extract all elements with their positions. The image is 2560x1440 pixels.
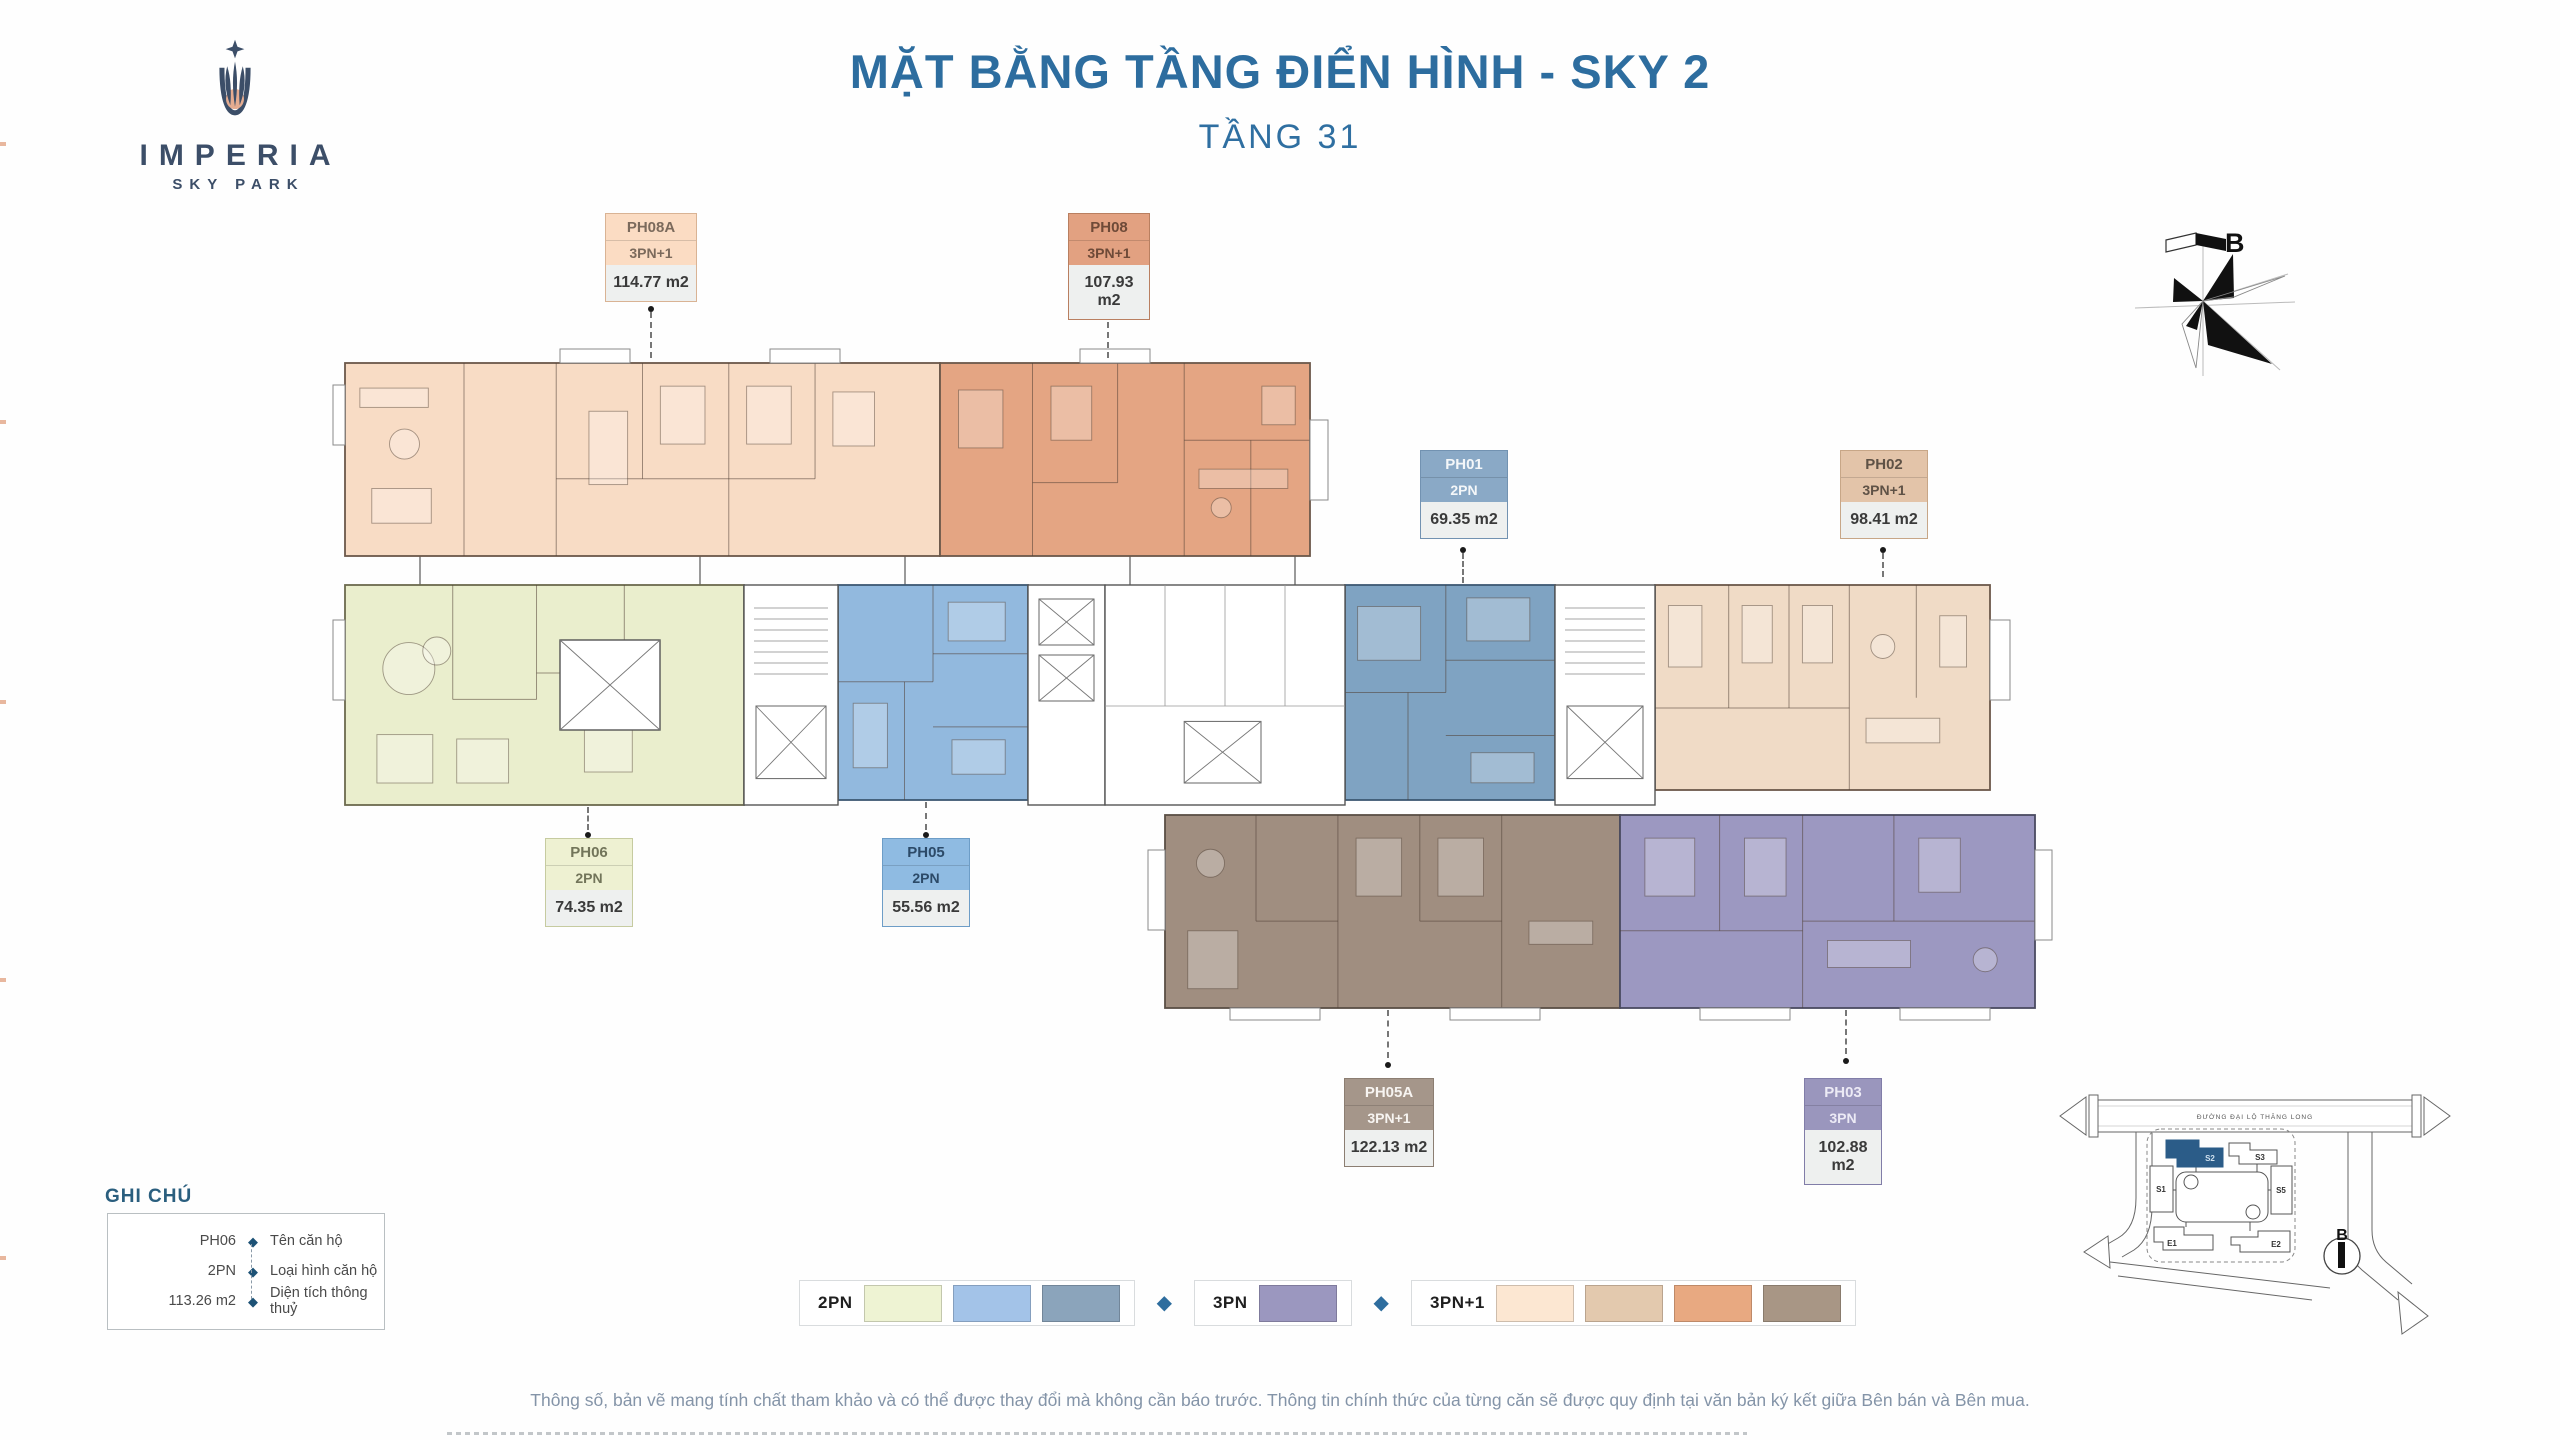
- furniture: [1199, 469, 1288, 488]
- diamond-separator-icon: ◆: [1157, 1293, 1172, 1313]
- plan-unit-PH08A: [345, 363, 940, 556]
- legend-key-title: GHI CHÚ: [105, 1186, 192, 1208]
- leader-dot-PH08A: [648, 306, 654, 312]
- diamond-bullet-icon: ◆: [236, 1235, 270, 1248]
- legend-key-desc: Loại hình căn hộ: [270, 1263, 384, 1279]
- plan-unit-PH05A: [1165, 815, 1620, 1008]
- type-legend-group-2PN: 2PN: [799, 1280, 1135, 1326]
- legend-key-sample: PH06: [108, 1233, 236, 1249]
- page-edge-mark: [0, 420, 6, 424]
- balcony: [1080, 349, 1150, 363]
- furniture: [1866, 718, 1940, 743]
- plan-unit-PH02: [1655, 585, 1990, 790]
- balcony: [1990, 620, 2010, 700]
- unit-type: 3PN: [1805, 1106, 1881, 1130]
- plan-unit-PH05: [838, 585, 1028, 800]
- sitemap-building-E2: [2231, 1231, 2290, 1252]
- balcony: [333, 385, 345, 445]
- unit-area: 102.88 m2: [1805, 1130, 1881, 1184]
- core-mep: [1105, 585, 1345, 805]
- leader-line-PH01: [1462, 553, 1464, 583]
- core-stair: [744, 585, 838, 805]
- unit-label-PH01: PH012PN69.35 m2: [1420, 450, 1508, 539]
- sitemap-building-label-S2: S2: [2205, 1154, 2215, 1163]
- page-edge-mark: [0, 1256, 6, 1260]
- legend-key-connector: [251, 1244, 252, 1299]
- furniture: [959, 390, 1003, 448]
- color-swatch: [1042, 1285, 1120, 1322]
- unit-label-PH02: PH023PN+198.41 m2: [1840, 450, 1928, 539]
- furniture: [1438, 838, 1484, 896]
- furniture: [1742, 606, 1772, 663]
- balcony: [1450, 1008, 1540, 1020]
- sitemap-building-label-S3: S3: [2255, 1153, 2265, 1162]
- floor-plan-page: IMPERIA SKY PARK MẶT BẰNG TẦNG ĐIỂN HÌNH…: [0, 0, 2560, 1440]
- furniture: [589, 411, 628, 484]
- unit-id: PH08A: [606, 214, 696, 241]
- core-stair: [1555, 585, 1655, 805]
- logo-tagline: SKY PARK: [95, 176, 375, 193]
- site-location-map: ĐƯỜNG ĐẠI LỘ THĂNG LONGS1S2S3S5E1E2B: [2055, 1080, 2485, 1370]
- type-legend: 2PN◆3PN◆3PN+1: [799, 1280, 1856, 1326]
- unit-type: 3PN+1: [1069, 241, 1149, 265]
- leader-dot-PH03: [1843, 1058, 1849, 1064]
- unit-area: 74.35 m2: [546, 890, 632, 926]
- unit-type: 3PN+1: [1841, 478, 1927, 502]
- color-swatch: [1259, 1285, 1337, 1322]
- plan-unit-PH08: [940, 363, 1310, 556]
- unit-type: 3PN+1: [1345, 1106, 1433, 1130]
- furniture: [1358, 607, 1421, 661]
- furniture: [1645, 838, 1695, 896]
- sitemap-road-label: ĐƯỜNG ĐẠI LỘ THĂNG LONG: [2197, 1112, 2313, 1121]
- diamond-bullet-icon: ◆: [236, 1265, 270, 1278]
- unit-label-PH03: PH033PN102.88 m2: [1804, 1078, 1882, 1185]
- type-legend-label: 3PN: [1213, 1293, 1248, 1313]
- page-title: MẶT BẰNG TẦNG ĐIỂN HÌNH - SKY 2: [0, 44, 2560, 99]
- balcony: [1900, 1008, 1990, 1020]
- disclaimer-text: Thông số, bản vẽ mang tính chất tham khả…: [0, 1390, 2560, 1411]
- unit-id: PH05A: [1345, 1079, 1433, 1106]
- road-arrow-icon: [2060, 1097, 2086, 1135]
- furniture: [390, 429, 420, 459]
- furniture: [948, 602, 1005, 641]
- type-legend-group-3PN: 3PN: [1194, 1280, 1352, 1326]
- furniture: [833, 392, 875, 446]
- color-swatch: [864, 1285, 942, 1322]
- plan-unit-PH06: [345, 585, 744, 805]
- furniture: [1197, 849, 1225, 877]
- bottom-dashed-strip: [447, 1432, 1747, 1435]
- leader-dot-PH01: [1460, 547, 1466, 553]
- furniture: [1529, 921, 1593, 944]
- furniture: [853, 703, 887, 768]
- furniture: [952, 740, 1005, 774]
- page-edge-mark: [0, 978, 6, 982]
- legend-key-row: 113.26 m2◆Diện tích thông thuỷ: [108, 1286, 384, 1316]
- unit-area: 98.41 m2: [1841, 502, 1927, 538]
- type-legend-group-3PNplus1: 3PN+1: [1411, 1280, 1856, 1326]
- legend-key-desc: Tên căn hộ: [270, 1233, 384, 1249]
- leader-line-PH05A: [1387, 1010, 1389, 1058]
- furniture: [457, 739, 509, 783]
- unit-type: 2PN: [1421, 478, 1507, 502]
- unit-type: 2PN: [883, 866, 969, 890]
- page-subtitle: TẦNG 31: [0, 118, 2560, 157]
- unit-label-PH08A: PH08A3PN+1114.77 m2: [605, 213, 697, 302]
- unit-area: 114.77 m2: [606, 265, 696, 301]
- unit-area: 122.13 m2: [1345, 1130, 1433, 1166]
- page-edge-mark: [0, 142, 6, 146]
- furniture: [1802, 606, 1832, 663]
- furniture: [1211, 498, 1231, 518]
- furniture: [1471, 753, 1534, 783]
- furniture: [1940, 616, 1967, 667]
- furniture: [1973, 948, 1997, 972]
- furniture: [360, 388, 428, 407]
- furniture: [1871, 635, 1895, 659]
- diamond-separator-icon: ◆: [1374, 1293, 1389, 1313]
- furniture: [1745, 838, 1787, 896]
- sitemap-building-E1: [2154, 1227, 2213, 1250]
- sitemap-compass-label: B: [2336, 1227, 2348, 1244]
- unit-id: PH08: [1069, 214, 1149, 241]
- balcony: [770, 349, 840, 363]
- legend-key-box: PH06◆Tên căn hộ2PN◆Loại hình căn hộ113.2…: [107, 1213, 385, 1330]
- road-arrow-icon: [2084, 1236, 2110, 1268]
- road-arrow-icon: [2398, 1292, 2428, 1334]
- north-compass-icon: B: [2130, 218, 2300, 398]
- furniture: [1356, 838, 1402, 896]
- sitemap-building-label-E2: E2: [2271, 1240, 2281, 1249]
- furniture: [1919, 838, 1961, 892]
- furniture: [1828, 940, 1911, 967]
- balcony: [560, 349, 630, 363]
- core-void: [560, 640, 660, 730]
- balcony: [2035, 850, 2052, 940]
- leader-line-PH08A: [650, 312, 652, 358]
- unit-id: PH01: [1421, 451, 1507, 478]
- unit-label-PH05: PH052PN55.56 m2: [882, 838, 970, 927]
- color-swatch: [1674, 1285, 1752, 1322]
- compass-north-label: B: [2225, 228, 2245, 258]
- sitemap-building-S3: [2229, 1143, 2277, 1164]
- legend-key-sample: 2PN: [108, 1263, 236, 1279]
- furniture: [1467, 598, 1530, 641]
- leader-dot-PH05A: [1385, 1062, 1391, 1068]
- unit-id: PH03: [1805, 1079, 1881, 1106]
- furniture: [423, 637, 451, 665]
- unit-label-PH05A: PH05A3PN+1122.13 m2: [1344, 1078, 1434, 1167]
- type-legend-label: 2PN: [818, 1293, 853, 1313]
- furniture: [747, 386, 792, 444]
- balcony: [1700, 1008, 1790, 1020]
- unit-area: 69.35 m2: [1421, 502, 1507, 538]
- unit-label-PH06: PH062PN74.35 m2: [545, 838, 633, 927]
- furniture: [1262, 386, 1295, 425]
- legend-key-row: 2PN◆Loại hình căn hộ: [108, 1256, 384, 1286]
- unit-label-PH08: PH083PN+1107.93 m2: [1068, 213, 1150, 320]
- furniture: [377, 735, 433, 783]
- unit-type: 2PN: [546, 866, 632, 890]
- legend-key-row: PH06◆Tên căn hộ: [108, 1226, 384, 1256]
- balcony: [333, 620, 345, 700]
- unit-type: 3PN+1: [606, 241, 696, 265]
- type-legend-label: 3PN+1: [1430, 1293, 1485, 1313]
- color-swatch: [1496, 1285, 1574, 1322]
- leader-line-PH06: [587, 807, 589, 830]
- unit-id: PH05: [883, 839, 969, 866]
- unit-area: 107.93 m2: [1069, 265, 1149, 319]
- balcony: [1230, 1008, 1320, 1020]
- plan-unit-PH01: [1345, 585, 1555, 800]
- legend-key-desc: Diện tích thông thuỷ: [270, 1285, 384, 1317]
- legend-key-sample: 113.26 m2: [108, 1293, 236, 1309]
- leader-dot-PH02: [1880, 547, 1886, 553]
- color-swatch: [953, 1285, 1031, 1322]
- color-swatch: [1763, 1285, 1841, 1322]
- leader-line-PH03: [1845, 1010, 1847, 1054]
- furniture: [1188, 931, 1238, 989]
- plan-unit-PH03: [1620, 815, 2035, 1008]
- unit-area: 55.56 m2: [883, 890, 969, 926]
- furniture: [372, 488, 432, 523]
- furniture: [1051, 386, 1092, 440]
- sitemap-building-label-E1: E1: [2167, 1239, 2177, 1248]
- diamond-bullet-icon: ◆: [236, 1295, 270, 1308]
- furniture: [660, 386, 705, 444]
- leader-line-PH05: [925, 802, 927, 830]
- sitemap-building-label-S5: S5: [2276, 1186, 2286, 1195]
- road-arrow-icon: [2424, 1097, 2450, 1135]
- leader-line-PH02: [1882, 553, 1884, 577]
- core-lift: [1028, 585, 1105, 805]
- balcony: [1310, 420, 1328, 500]
- sitemap-building-label-S1: S1: [2156, 1185, 2166, 1194]
- furniture: [1668, 606, 1702, 668]
- sitemap-central-block: [2173, 1164, 2271, 1231]
- unit-id: PH06: [546, 839, 632, 866]
- color-swatch: [1585, 1285, 1663, 1322]
- sitemap-compass-icon: B: [2324, 1227, 2360, 1274]
- balcony: [1148, 850, 1165, 930]
- page-edge-mark: [0, 700, 6, 704]
- unit-id: PH02: [1841, 451, 1927, 478]
